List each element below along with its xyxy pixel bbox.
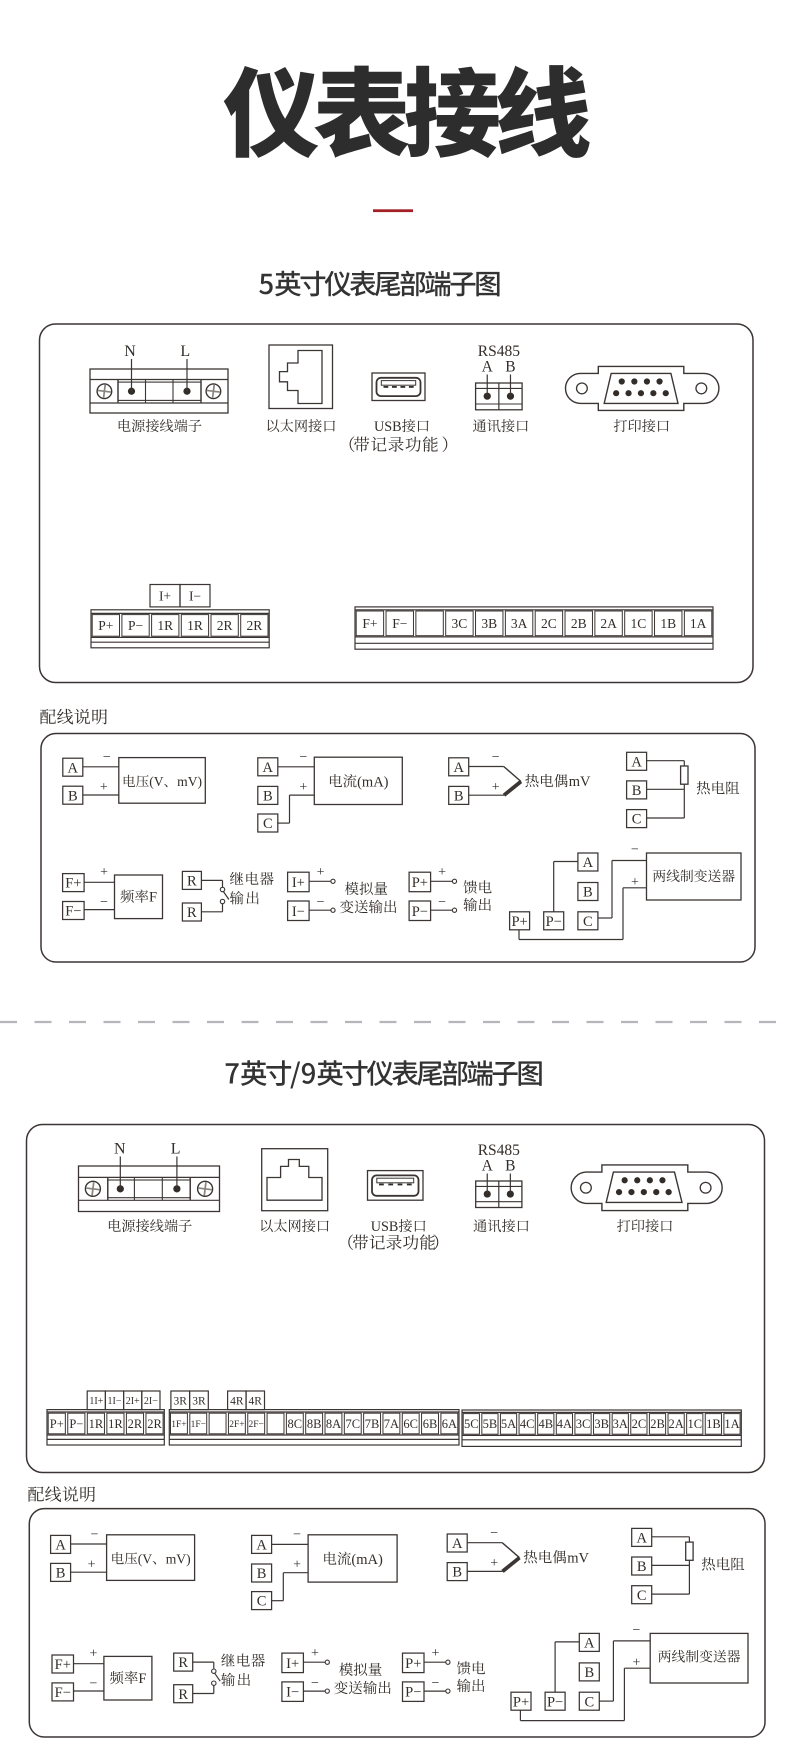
svg-text:A: A [631,754,642,770]
svg-text:2R: 2R [147,1417,162,1431]
svg-text:8A: 8A [326,1417,341,1431]
svg-text:mV): mV) [166,1551,191,1567]
svg-text:3B: 3B [481,616,497,631]
svg-text:A: A [482,1158,494,1175]
svg-text:−: − [103,750,111,765]
svg-text:2R: 2R [246,618,262,633]
svg-text:L: L [171,1141,181,1158]
svg-text:A: A [583,855,594,871]
svg-text:+: + [438,865,446,880]
svg-text:R: R [187,873,197,889]
svg-text:2B: 2B [650,1417,665,1431]
svg-text:4R: 4R [249,1395,263,1407]
svg-text:+: + [100,780,108,795]
svg-text:P−: P− [405,1685,421,1701]
svg-text:8B: 8B [307,1417,322,1431]
svg-text:1I+: 1I+ [89,1396,103,1407]
svg-text:+: + [317,865,325,880]
svg-text:−: − [90,1677,98,1692]
svg-text:4A: 4A [557,1417,572,1431]
svg-text:+: + [88,1557,96,1572]
svg-text:2C: 2C [632,1417,647,1431]
svg-text:2A: 2A [600,616,617,631]
svg-text:7A: 7A [384,1417,399,1431]
svg-text:P−: P− [128,618,143,633]
svg-text:B: B [584,1665,594,1681]
svg-text:A: A [584,1635,595,1651]
svg-text:P−: P− [546,914,562,930]
svg-text:4R: 4R [230,1395,244,1407]
svg-text:RS485: RS485 [478,1142,520,1159]
svg-text:B: B [68,788,78,804]
svg-text:P+: P+ [405,1656,421,1672]
svg-text:−: − [293,1527,301,1542]
svg-text:1R: 1R [89,1417,104,1431]
svg-text:−: − [438,895,446,910]
svg-text:RS485: RS485 [478,343,520,360]
svg-text:+: + [632,1655,640,1670]
svg-text:−: − [432,1676,440,1691]
svg-text:P+: P+ [513,1694,529,1710]
svg-text:P−: P− [547,1694,563,1710]
svg-text:3A: 3A [613,1417,628,1431]
svg-text:5A: 5A [501,1417,516,1431]
svg-text:2R: 2R [128,1417,143,1431]
svg-text:P+: P+ [511,914,527,930]
svg-text:F+: F+ [362,616,377,631]
svg-text:(V: (V [138,1551,153,1567]
svg-text:mV): mV) [177,774,202,790]
svg-text:N: N [124,343,136,360]
svg-text:A: A [453,760,464,776]
svg-text:−: − [91,1527,99,1542]
svg-text:P−: P− [69,1417,83,1431]
svg-text:C: C [632,812,642,828]
svg-text:+: + [432,1646,440,1661]
svg-text:B: B [632,783,642,799]
svg-text:B: B [583,885,593,901]
svg-text:7C: 7C [345,1417,360,1431]
svg-text:F: F [138,1671,146,1687]
svg-text:2F+: 2F+ [229,1420,244,1430]
svg-text:2F−: 2F− [249,1420,264,1430]
svg-text:4B: 4B [539,1417,554,1431]
svg-text:F−: F− [392,616,407,631]
svg-text:1R: 1R [157,618,173,633]
svg-text:P+: P+ [412,875,428,891]
svg-text:−: − [631,843,639,858]
svg-text:2B: 2B [571,616,587,631]
svg-text:1I−: 1I− [108,1396,122,1407]
svg-text:(V: (V [149,774,164,790]
svg-text:1A: 1A [690,616,707,631]
svg-text:mV: mV [567,1550,589,1566]
svg-text:−: − [632,1623,640,1638]
svg-text:6C: 6C [403,1417,418,1431]
svg-text:L: L [180,343,190,360]
svg-text:B: B [454,788,464,804]
svg-text:+: + [90,1647,98,1662]
svg-text:A: A [68,760,79,776]
svg-text:B: B [637,1559,647,1575]
svg-text:A: A [452,1536,463,1552]
svg-text:C: C [637,1588,647,1604]
svg-text:I+: I+ [286,1656,299,1672]
svg-text:1F+: 1F+ [171,1420,186,1430]
svg-text:−: − [100,895,108,910]
svg-text:A: A [256,1537,267,1553]
svg-text:P−: P− [412,904,428,920]
svg-text:2I−: 2I− [144,1396,158,1407]
svg-text:1B: 1B [660,616,676,631]
svg-text:1C: 1C [631,616,647,631]
svg-text:A: A [482,359,494,376]
svg-text:−: − [490,1526,498,1541]
svg-text:+: + [293,1557,301,1572]
svg-text:F−: F− [65,904,81,920]
svg-text:R: R [178,1655,188,1671]
svg-text:I+: I+ [292,875,305,891]
svg-text:A: A [55,1537,66,1553]
svg-text:B: B [452,1565,462,1581]
svg-text:6B: 6B [423,1417,438,1431]
svg-text:3A: 3A [511,616,528,631]
svg-text:+: + [492,780,500,795]
svg-text:+: + [311,1646,319,1661]
svg-text:6A: 6A [442,1417,457,1431]
svg-text:−: − [317,895,325,910]
svg-text:+: + [299,780,307,795]
svg-text:C: C [584,1694,594,1710]
svg-text:B: B [257,1566,267,1582]
svg-text:F−: F− [55,1685,71,1701]
svg-text:+: + [100,865,108,880]
svg-text:B: B [505,359,515,376]
svg-text:B: B [263,788,273,804]
svg-text:+: + [490,1556,498,1571]
svg-text:A: A [636,1530,647,1546]
svg-text:I−: I− [292,904,305,920]
svg-text:2C: 2C [541,616,557,631]
svg-text:2A: 2A [668,1417,683,1431]
svg-text:B: B [505,1158,515,1175]
svg-text:5B: 5B [483,1417,498,1431]
svg-text:3B: 3B [594,1417,609,1431]
svg-text:R: R [187,905,197,921]
svg-text:I+: I+ [159,588,171,603]
svg-text:4C: 4C [520,1417,535,1431]
svg-text:−: − [299,750,307,765]
svg-text:F+: F+ [65,876,81,892]
svg-text:3R: 3R [192,1395,206,1407]
svg-text:1A: 1A [724,1417,739,1431]
svg-text:I−: I− [189,588,201,603]
svg-text:F+: F+ [55,1657,71,1673]
svg-text:3C: 3C [452,616,468,631]
svg-text:1R: 1R [187,618,203,633]
svg-text:2I+: 2I+ [126,1396,140,1407]
svg-text:R: R [178,1687,188,1703]
svg-text:1B: 1B [706,1417,721,1431]
svg-text:P+: P+ [98,618,113,633]
svg-text:F: F [149,890,157,906]
svg-text:mV: mV [569,774,591,790]
svg-text:C: C [263,816,273,832]
svg-text:1C: 1C [687,1417,702,1431]
svg-text:+: + [631,875,639,890]
svg-text:P+: P+ [50,1417,64,1431]
svg-text:8C: 8C [288,1417,303,1431]
svg-text:USB: USB [371,1219,399,1235]
svg-text:(mA): (mA) [351,1552,383,1568]
svg-text:A: A [263,760,274,776]
svg-text:(mA): (mA) [357,774,389,790]
svg-text:−: − [311,1676,319,1691]
svg-text:B: B [56,1565,66,1581]
svg-text:−: − [492,750,500,765]
svg-text:I−: I− [286,1685,299,1701]
svg-text:C: C [583,914,593,930]
svg-text:N: N [114,1141,126,1158]
svg-text:1R: 1R [108,1417,123,1431]
svg-text:1F−: 1F− [191,1420,206,1430]
svg-text:C: C [257,1594,267,1610]
svg-text:3R: 3R [174,1395,188,1407]
svg-text:7B: 7B [365,1417,380,1431]
svg-text:3C: 3C [576,1417,591,1431]
svg-text:5C: 5C [464,1417,479,1431]
svg-text:USB: USB [374,419,402,435]
svg-text:2R: 2R [217,618,233,633]
